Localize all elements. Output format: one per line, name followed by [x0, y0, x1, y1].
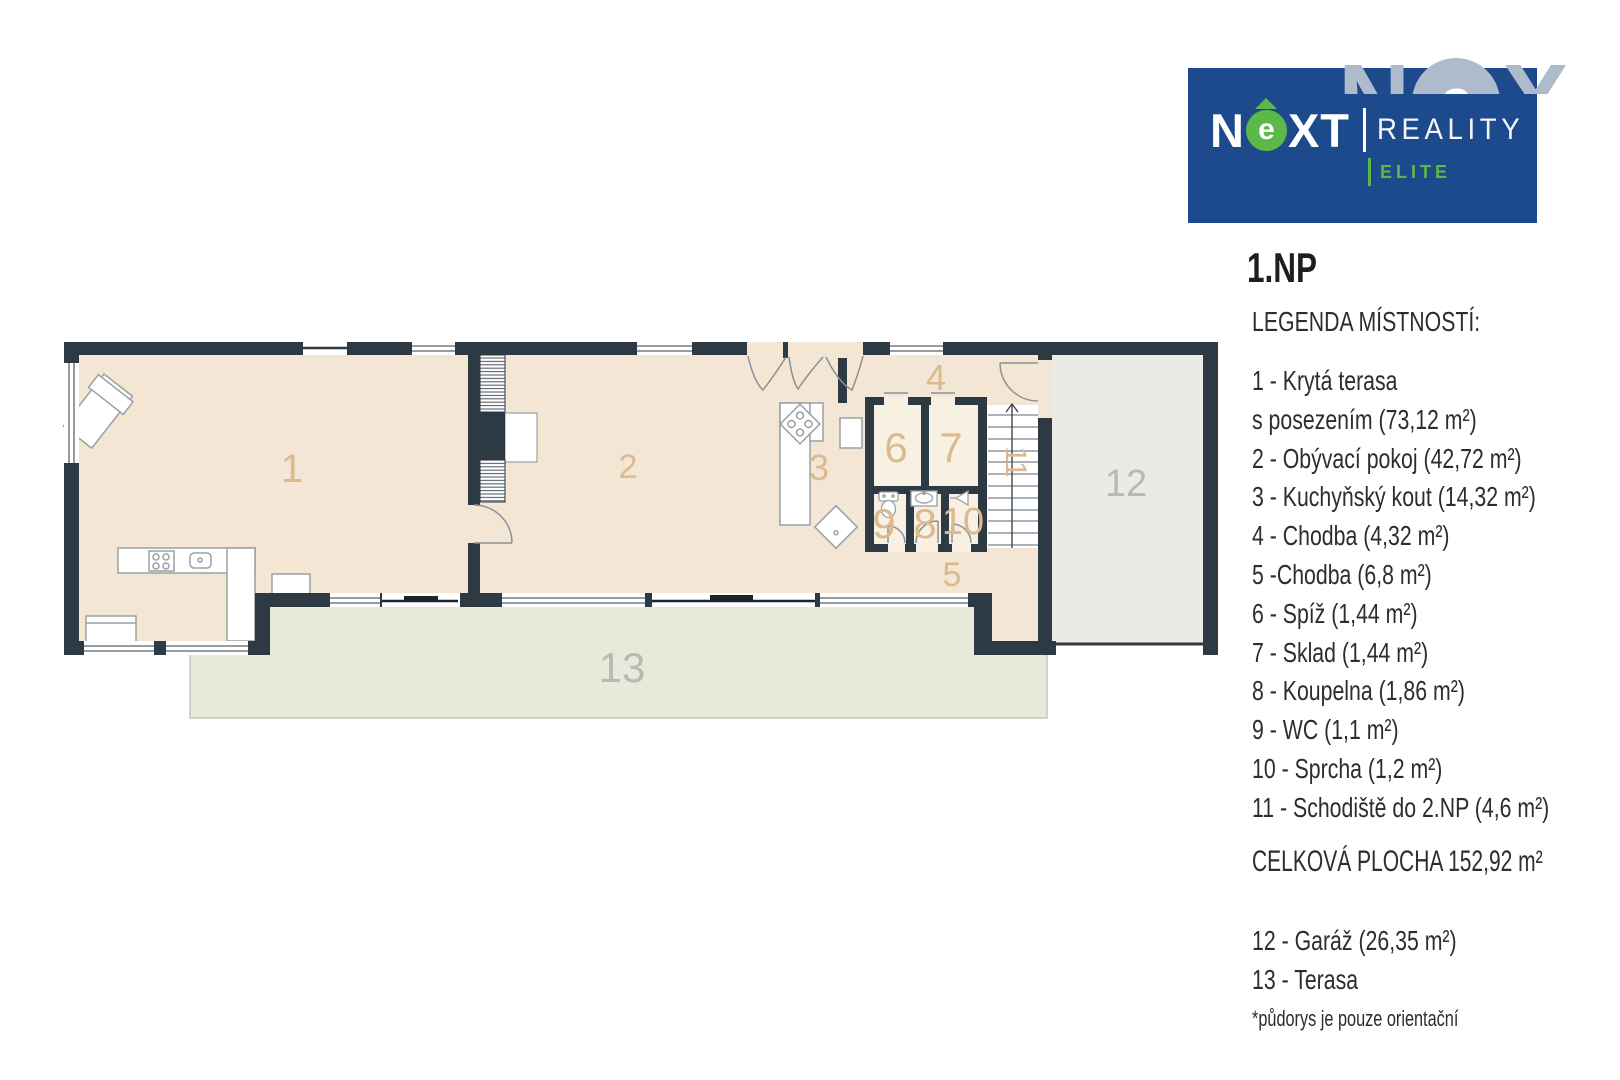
legend-extra-list: 12 - Garáž (26,35 m²) 13 - Terasa: [1252, 921, 1457, 999]
brand-divider: [1363, 108, 1366, 152]
room-number-4: 4: [926, 357, 946, 398]
legend-item: 11 - Schodiště do 2.NP (4,6 m²): [1252, 789, 1549, 828]
watermark-e-circle-icon: e: [1412, 58, 1500, 94]
room-number-6: 6: [884, 424, 907, 471]
legend-item: 6 - Spíž (1,44 m²): [1252, 595, 1549, 634]
elite-row: ELITE: [1368, 158, 1451, 186]
legend-item: 10 - Sprcha (1,2 m²): [1252, 750, 1549, 789]
elite-divider: [1368, 158, 1371, 186]
fireplace: [505, 413, 537, 462]
room-number-11: 11: [999, 446, 1032, 477]
watermark-letter-n: N: [1338, 52, 1410, 94]
legend-heading: LEGENDA MÍSTNOSTÍ:: [1252, 306, 1480, 338]
sink-icon: [190, 553, 211, 568]
legend-footnote: *půdorys je pouze orientační: [1252, 1006, 1458, 1032]
brand-elite: ELITE: [1380, 162, 1451, 183]
room-number-8: 8: [913, 500, 936, 547]
brand-reality: REALITY: [1377, 113, 1524, 147]
brand-letters-xt: XT: [1288, 107, 1350, 154]
room-number-10: 10: [942, 501, 984, 543]
watermark-letter-x: X: [1502, 52, 1569, 94]
legend-item: 13 - Terasa: [1252, 960, 1457, 999]
legend-list: 1 - Krytá terasa s posezením (73,12 m²) …: [1252, 362, 1549, 828]
legend-item: 1 - Krytá terasa: [1252, 362, 1549, 401]
legend-item: 7 - Sklad (1,44 m²): [1252, 634, 1549, 673]
bench: [86, 616, 136, 642]
page-title: 1.NP: [1247, 244, 1317, 292]
page: { "logo": { "brand_n": "N", "brand_e": "…: [0, 0, 1620, 1080]
legend-item: 3 - Kuchyňský kout (14,32 m²): [1252, 478, 1549, 517]
legend-item: 12 - Garáž (26,35 m²): [1252, 921, 1457, 960]
room-number-12: 12: [1105, 463, 1147, 505]
room-number-13: 13: [599, 644, 646, 691]
legend-item: 2 - Obývací pokoj (42,72 m²): [1252, 440, 1549, 479]
hob-icon: [149, 551, 174, 571]
legend-item: 9 - WC (1,1 m²): [1252, 711, 1549, 750]
legend-item: 4 - Chodba (4,32 m²): [1252, 517, 1549, 556]
legend-item: s posezením (73,12 m²): [1252, 401, 1549, 440]
watermark-letter-e: e: [1439, 71, 1473, 94]
brand-letter-e: e: [1258, 115, 1275, 145]
logo-watermark: N e X: [1338, 52, 1620, 94]
legend-item: 8 - Koupelna (1,86 m²): [1252, 672, 1549, 711]
brand-letter-n: N: [1210, 107, 1245, 154]
room-number-3: 3: [809, 447, 829, 488]
total-area: CELKOVÁ PLOCHA 152,92 m²: [1252, 845, 1543, 879]
room-number-2: 2: [619, 448, 638, 486]
room-number-7: 7: [939, 424, 962, 471]
brand-e-circle-icon: e: [1246, 110, 1287, 151]
legend-item: 5 -Chodba (6,8 m²): [1252, 556, 1549, 595]
entry-cabinet: [840, 418, 862, 448]
brand-row: N e XT REALITY: [1210, 104, 1537, 156]
room-number-5: 5: [943, 556, 962, 594]
brand-arrow-icon: [1255, 98, 1277, 109]
room-number-9: 9: [872, 500, 895, 547]
room-number-1: 1: [281, 447, 303, 491]
